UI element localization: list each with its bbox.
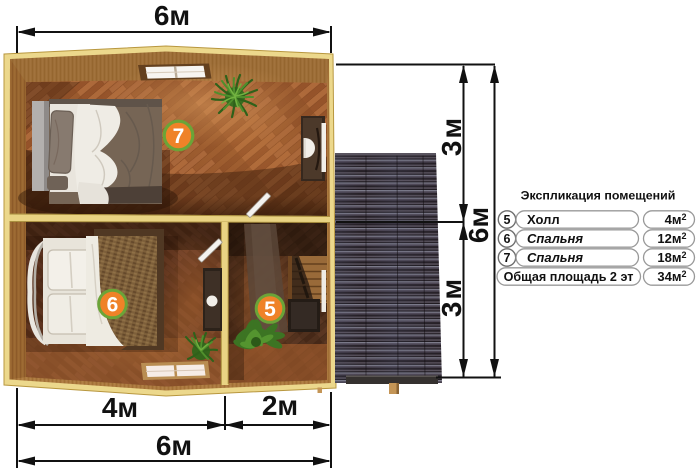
svg-text:6: 6 <box>107 294 119 317</box>
svg-text:Холл: Холл <box>527 212 560 227</box>
svg-text:3м: 3м <box>436 116 467 156</box>
svg-text:7: 7 <box>173 125 185 148</box>
svg-text:6м: 6м <box>156 430 192 461</box>
svg-text:3м: 3м <box>436 277 467 317</box>
svg-text:5: 5 <box>504 213 511 227</box>
svg-text:6м: 6м <box>154 0 190 31</box>
svg-text:Спальня: Спальня <box>527 250 583 265</box>
svg-text:2м: 2м <box>262 390 298 421</box>
svg-text:Общая площадь 2 эт: Общая площадь 2 эт <box>504 270 634 284</box>
svg-text:4м: 4м <box>102 392 138 423</box>
svg-text:5: 5 <box>264 298 276 321</box>
svg-text:6: 6 <box>504 232 511 246</box>
svg-text:6м: 6м <box>463 207 494 243</box>
svg-text:7: 7 <box>504 251 511 265</box>
svg-text:Спальня: Спальня <box>527 231 583 246</box>
svg-text:Экспликация помещений: Экспликация помещений <box>521 189 676 203</box>
